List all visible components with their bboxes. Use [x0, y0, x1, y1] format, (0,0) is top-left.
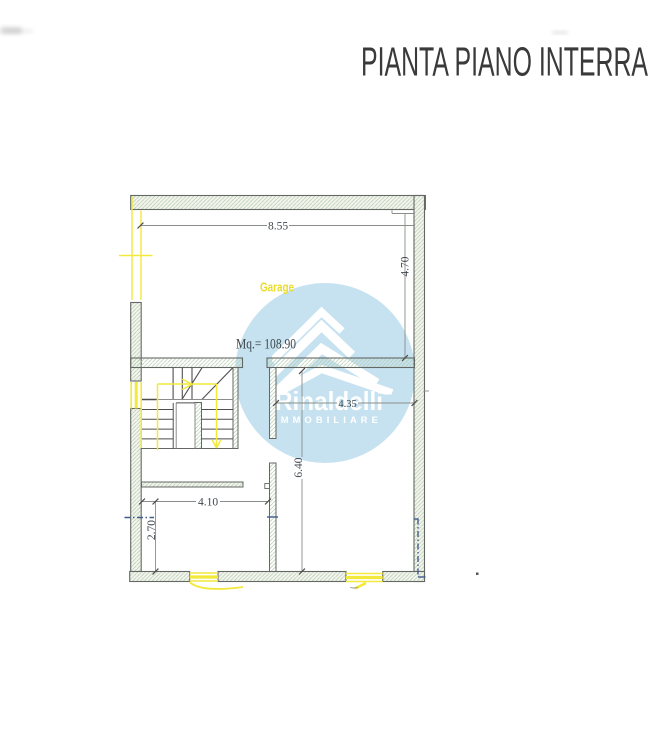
svg-text:Garage: Garage: [260, 281, 294, 295]
svg-text:PIANTA PIANO INTERRA: PIANTA PIANO INTERRA: [361, 39, 648, 85]
svg-text:2.70: 2.70: [146, 520, 158, 540]
svg-text:4.10: 4.10: [198, 497, 218, 509]
svg-text:4.70: 4.70: [400, 256, 412, 276]
svg-text:4.35: 4.35: [338, 399, 356, 410]
svg-text:6.40: 6.40: [293, 457, 305, 477]
svg-text:8.55: 8.55: [268, 221, 288, 233]
svg-text:Rinaldelli: Rinaldelli: [275, 386, 383, 416]
svg-text:IMMOBILIARE: IMMOBILIARE: [274, 415, 382, 426]
svg-text:Mq.= 108.90: Mq.= 108.90: [236, 337, 296, 353]
